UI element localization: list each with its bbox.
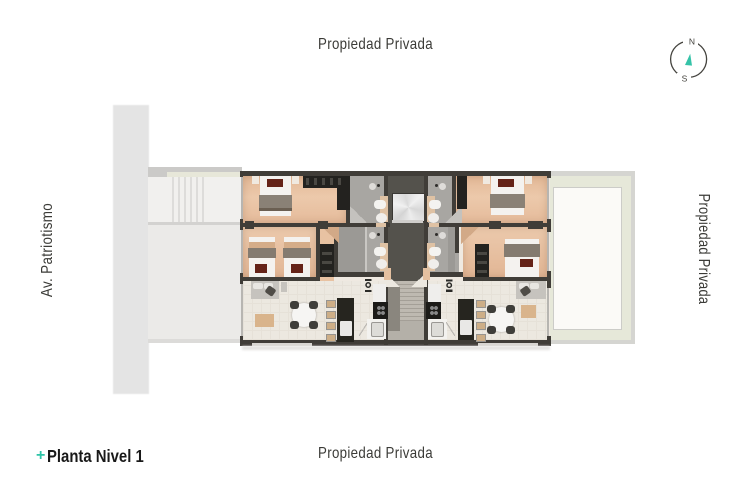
svg-text:N: N bbox=[689, 37, 695, 47]
svg-text:S: S bbox=[682, 74, 688, 84]
